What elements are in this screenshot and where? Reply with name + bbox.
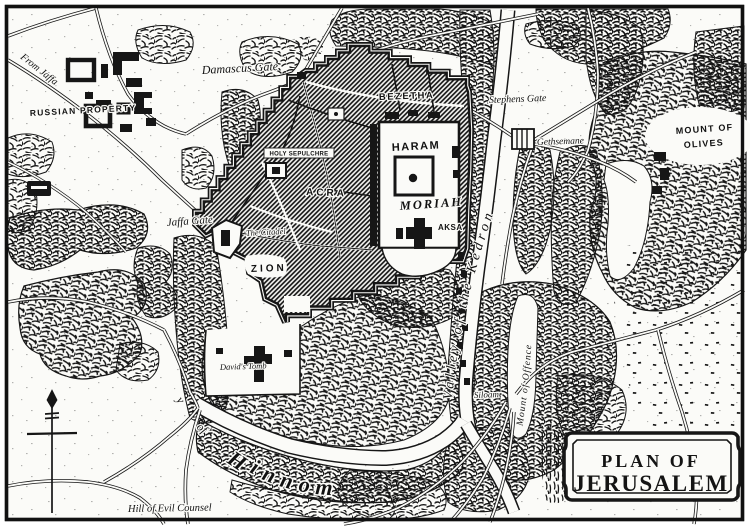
svg-text:m: m (315, 474, 334, 500)
svg-text:David's Tomb: David's Tomb (219, 360, 267, 372)
svg-text:PLAN OF: PLAN OF (601, 451, 701, 471)
svg-text:The Citadel: The Citadel (246, 226, 287, 238)
svg-text:JERUSALEM: JERUSALEM (573, 471, 728, 496)
svg-text:Hill of Evil Counsel: Hill of Evil Counsel (127, 503, 212, 515)
svg-text:BEZETHA: BEZETHA (379, 90, 435, 103)
svg-text:HOLY SEPULCHRE: HOLY SEPULCHRE (270, 152, 329, 158)
svg-text:Siloam: Siloam (474, 389, 500, 400)
svg-text:ACRA: ACRA (306, 187, 347, 199)
svg-text:AKSA: AKSA (438, 223, 463, 232)
svg-text:ZION: ZION (251, 263, 287, 275)
svg-text:Stephens Gate: Stephens Gate (489, 93, 547, 106)
svg-text:HARAM: HARAM (392, 139, 441, 154)
svg-text:Gethsemane: Gethsemane (537, 136, 584, 148)
